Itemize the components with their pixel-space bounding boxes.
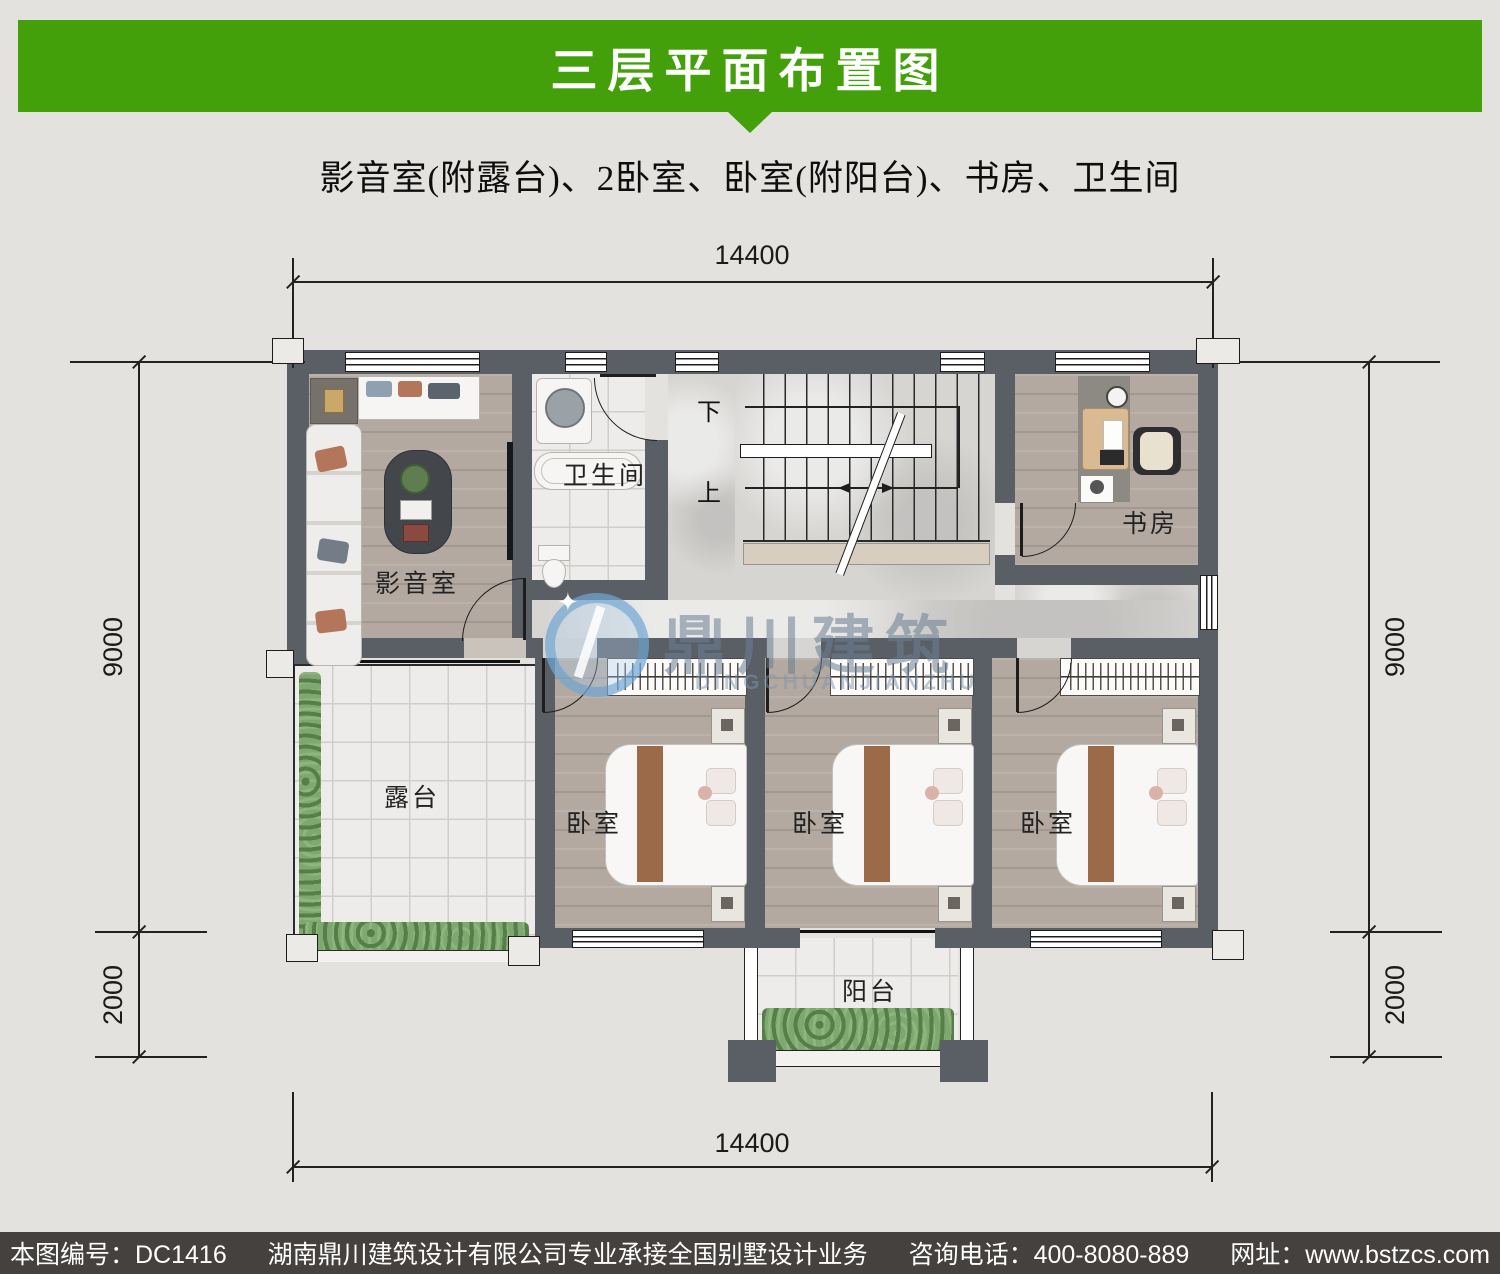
balcony-label: 阳台 bbox=[841, 972, 899, 1008]
stair-guide-turn bbox=[958, 406, 960, 488]
dim-stub-right-mid bbox=[1330, 931, 1442, 933]
banner-pointer bbox=[728, 112, 772, 133]
stair-guide-up bbox=[745, 487, 958, 489]
sofa-pillow-3 bbox=[315, 608, 347, 633]
bedroom3-pillow-2 bbox=[1157, 800, 1187, 826]
bed2-door-gap bbox=[767, 638, 821, 658]
corridor-floor bbox=[532, 600, 1218, 638]
dim-right-lower-value: 2000 bbox=[1380, 938, 1411, 1052]
study-door-leaf bbox=[1020, 503, 1023, 556]
footer-drawing-number: 本图编号：DC1416 bbox=[10, 1235, 227, 1271]
bedroom2-wardrobe bbox=[830, 658, 974, 696]
side-table bbox=[310, 378, 358, 424]
balcony-door-threshold bbox=[800, 930, 935, 933]
bedroom3-wardrobe bbox=[1060, 658, 1200, 696]
media-door-leaf bbox=[523, 578, 526, 640]
wall-bath-east bbox=[645, 440, 668, 600]
wall-stair-east-stub bbox=[995, 555, 1015, 585]
bedroom3-nightstand-top bbox=[1162, 708, 1196, 744]
bathroom-label: 卫生间 bbox=[563, 456, 641, 492]
window-hall bbox=[675, 352, 719, 372]
bedroom3-bed-runner bbox=[1088, 746, 1114, 882]
bedroom2-nightstand-bottom bbox=[938, 886, 972, 922]
study-printer bbox=[1080, 475, 1114, 503]
bedroom1-bed-runner bbox=[637, 746, 663, 882]
column-marker-sw bbox=[508, 936, 540, 966]
bedroom2-door-leaf bbox=[766, 658, 769, 712]
media-room-label: 影音室 bbox=[362, 564, 472, 600]
media-door-gap bbox=[464, 638, 526, 658]
desk-lamp bbox=[1106, 386, 1128, 408]
balcony-post-right bbox=[940, 1040, 988, 1082]
column-marker-nw bbox=[272, 338, 304, 364]
bed1-door-gap bbox=[543, 638, 597, 658]
dim-right-main-value: 9000 bbox=[1380, 590, 1411, 704]
bedroom2-bed-runner bbox=[864, 746, 890, 882]
window-stair bbox=[940, 352, 985, 372]
wall-east bbox=[1198, 350, 1218, 948]
dim-stub-right-bottom bbox=[1330, 1056, 1442, 1058]
floor-plan-page: 三层平面布置图 影音室(附露台)、2卧室、卧室(附阳台)、书房、卫生间 bbox=[0, 0, 1500, 1274]
wall-bed1-bed2 bbox=[745, 658, 765, 948]
desk-paper bbox=[1103, 420, 1123, 450]
bathroom-door-leaf bbox=[600, 374, 656, 377]
dim-left-main-value: 9000 bbox=[98, 590, 129, 704]
bedroom1-nightstand-bottom bbox=[711, 886, 745, 922]
bedroom3-cushion bbox=[1149, 786, 1163, 800]
bedroom1-cushion bbox=[698, 786, 712, 800]
dim-line-right bbox=[1368, 362, 1370, 1057]
study-chair bbox=[1133, 427, 1181, 475]
table-tray bbox=[400, 500, 432, 520]
dim-stub-left-mid bbox=[95, 931, 207, 933]
bedroom2-pillow-2 bbox=[933, 800, 963, 826]
bedroom1-wardrobe bbox=[607, 658, 747, 696]
balcony-post-left bbox=[728, 1040, 776, 1082]
footer-phone: 咨询电话：400-8080-889 bbox=[909, 1235, 1190, 1271]
dim-bottom-value: 14400 bbox=[687, 1128, 817, 1159]
bathroom-sink bbox=[545, 388, 585, 428]
footer-bar: 本图编号：DC1416 湖南鼎川建筑设计有限公司专业承接全国别墅设计业务 咨询电… bbox=[0, 1232, 1500, 1274]
column-marker-se bbox=[1212, 930, 1244, 960]
terrace-edge-band bbox=[295, 950, 538, 962]
balcony-rail-left bbox=[744, 948, 758, 1042]
column-marker-ne bbox=[1196, 338, 1240, 364]
stair-arrow-right bbox=[882, 483, 894, 493]
footer-website: 网址：www.bstzcs.com bbox=[1230, 1235, 1490, 1271]
console-cushion-dark bbox=[428, 383, 460, 399]
header-banner: 三层平面布置图 bbox=[18, 20, 1482, 112]
dim-left-lower-value: 2000 bbox=[98, 938, 129, 1052]
bedroom2-label: 卧室 bbox=[792, 804, 848, 840]
console-cushion-rust bbox=[398, 381, 422, 397]
bedroom2-nightstand-top bbox=[938, 708, 972, 744]
tv-panel bbox=[507, 442, 513, 560]
column-marker-terrace-bottom bbox=[286, 934, 318, 962]
bedroom3-nightstand-bottom bbox=[1162, 886, 1196, 922]
stair-arrow-left bbox=[838, 483, 850, 493]
plan-subtitle: 影音室(附露台)、2卧室、卧室(附阳台)、书房、卫生间 bbox=[0, 150, 1500, 201]
dim-line-left bbox=[138, 362, 140, 1057]
wall-bed2-bed3 bbox=[972, 658, 992, 948]
bedroom1-pillow-2 bbox=[706, 800, 736, 826]
terrace-label: 露台 bbox=[383, 778, 441, 814]
desk-keyboard bbox=[1100, 450, 1124, 465]
balcony-plants bbox=[762, 1008, 954, 1050]
wall-stair-east bbox=[995, 350, 1015, 503]
table-bowl bbox=[403, 524, 429, 542]
stair-landing bbox=[743, 543, 990, 565]
window-bath bbox=[565, 352, 607, 372]
wall-study-south bbox=[1015, 565, 1218, 585]
stair-up-label: 上 bbox=[697, 473, 721, 508]
terrace-plants-bottom bbox=[303, 922, 529, 950]
stair-rail bbox=[740, 444, 932, 458]
bed3-door-gap bbox=[1017, 638, 1071, 658]
terrace-plants-left bbox=[299, 672, 321, 946]
bedroom3-door-leaf bbox=[1016, 658, 1019, 712]
terrace-door-threshold bbox=[360, 660, 520, 663]
dim-line-top bbox=[292, 281, 1213, 283]
window-bedroom1 bbox=[572, 930, 704, 948]
stair-tread-base bbox=[743, 540, 990, 542]
bedroom1-door-leaf bbox=[542, 658, 545, 712]
console-cushion-blue bbox=[366, 381, 392, 397]
dim-line-bottom bbox=[292, 1166, 1212, 1168]
dim-top-value: 14400 bbox=[687, 240, 817, 271]
balcony-rail-right bbox=[960, 948, 974, 1042]
bedroom3-label: 卧室 bbox=[1020, 804, 1076, 840]
wall-mid-band bbox=[287, 638, 1218, 658]
column-marker-terrace-top bbox=[266, 650, 294, 678]
sofa-pillow-2 bbox=[316, 538, 349, 564]
stair-down-label: 下 bbox=[697, 392, 721, 427]
bedroom1-nightstand-top bbox=[711, 708, 745, 744]
dim-stub-left-bottom bbox=[95, 1056, 207, 1058]
window-study bbox=[1055, 352, 1150, 372]
bedroom2-cushion bbox=[925, 786, 939, 800]
footer-company: 湖南鼎川建筑设计有限公司专业承接全国别墅设计业务 bbox=[268, 1235, 868, 1271]
window-media bbox=[345, 352, 480, 372]
window-corridor-east bbox=[1200, 575, 1218, 630]
stair-guide-down bbox=[745, 406, 958, 408]
bedroom1-label: 卧室 bbox=[566, 804, 622, 840]
page-title: 三层平面布置图 bbox=[551, 32, 950, 101]
study-label: 书房 bbox=[1118, 504, 1182, 540]
table-plant bbox=[400, 464, 430, 494]
dim-stub-right-top bbox=[1240, 361, 1440, 363]
dim-stub-left-top bbox=[70, 361, 305, 363]
window-bedroom3 bbox=[1030, 930, 1162, 948]
balcony-edge-band bbox=[744, 1050, 972, 1067]
